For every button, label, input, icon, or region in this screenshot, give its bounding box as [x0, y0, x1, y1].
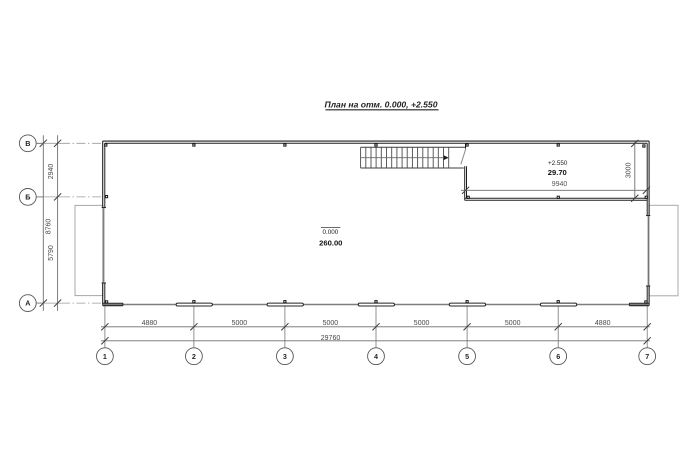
- svg-text:4880: 4880: [142, 320, 158, 327]
- svg-text:260.00: 260.00: [319, 239, 342, 248]
- svg-text:3: 3: [283, 352, 287, 361]
- svg-text:Б: Б: [25, 193, 30, 202]
- svg-text:29.70: 29.70: [548, 168, 567, 177]
- svg-text:3000: 3000: [625, 162, 632, 178]
- svg-text:А: А: [25, 299, 30, 308]
- svg-text:5000: 5000: [505, 320, 521, 327]
- svg-text:+2.550: +2.550: [548, 160, 568, 167]
- svg-text:0.000: 0.000: [323, 229, 339, 236]
- svg-text:5: 5: [465, 352, 469, 361]
- svg-text:5000: 5000: [414, 320, 430, 327]
- svg-text:6: 6: [556, 352, 560, 361]
- svg-text:4: 4: [374, 352, 378, 361]
- svg-text:9940: 9940: [552, 181, 568, 188]
- svg-text:5000: 5000: [323, 320, 339, 327]
- svg-text:7: 7: [645, 352, 649, 361]
- svg-text:1: 1: [103, 352, 107, 361]
- svg-text:4880: 4880: [595, 320, 611, 327]
- svg-text:2: 2: [192, 352, 196, 361]
- svg-text:5790: 5790: [48, 245, 55, 261]
- svg-text:29760: 29760: [321, 335, 341, 342]
- svg-text:8760: 8760: [46, 219, 53, 235]
- svg-text:2940: 2940: [48, 164, 55, 180]
- svg-text:В: В: [25, 139, 30, 148]
- svg-text:План на отм. 0.000, +2.550: План на отм. 0.000, +2.550: [325, 99, 438, 109]
- svg-text:5000: 5000: [232, 320, 248, 327]
